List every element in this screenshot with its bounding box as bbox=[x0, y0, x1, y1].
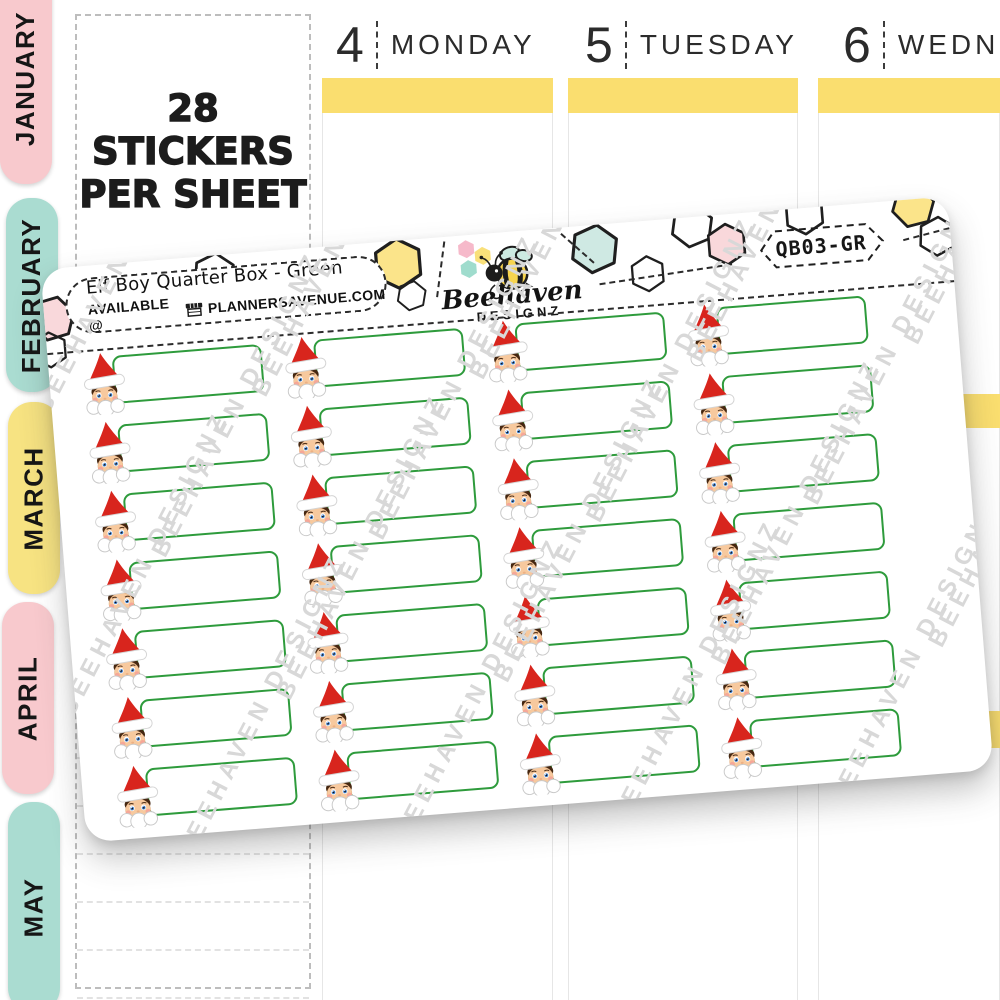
hexagon-pink-icon bbox=[703, 221, 750, 268]
elf-boy-icon bbox=[290, 470, 343, 538]
quarter-box bbox=[139, 688, 292, 748]
day-separator bbox=[883, 21, 885, 69]
quarter-box bbox=[542, 655, 695, 715]
elf-boy-icon bbox=[88, 486, 141, 554]
elf-boy-icon bbox=[99, 624, 152, 692]
day-header: 5 TUESDAY bbox=[568, 16, 798, 74]
quarter-box-sticker bbox=[88, 474, 292, 552]
day-number: 5 bbox=[585, 16, 614, 74]
elf-boy-icon bbox=[714, 713, 767, 781]
elf-boy-icon bbox=[513, 729, 566, 797]
day-highlight-bar bbox=[568, 78, 798, 113]
elf-boy-icon bbox=[306, 677, 359, 745]
quarter-box-sticker bbox=[687, 357, 891, 435]
logo-hex-pink bbox=[458, 240, 475, 259]
quarter-box bbox=[112, 344, 265, 404]
quarter-box bbox=[313, 328, 466, 388]
elf-boy-icon bbox=[508, 660, 561, 728]
quarter-box bbox=[117, 413, 270, 473]
sticker-sheet: Elf Boy Quarter Box - Green AVAILABLE @ … bbox=[40, 196, 993, 842]
sticker-count-line2: PER SHEET bbox=[75, 174, 311, 217]
quarter-box-sticker bbox=[513, 717, 717, 795]
day-separator bbox=[625, 21, 627, 69]
ruled-line bbox=[77, 853, 309, 855]
quarter-box-sticker bbox=[502, 579, 706, 657]
ruled-line bbox=[77, 949, 309, 951]
hexagon-outline-icon bbox=[393, 277, 430, 314]
quarter-box-sticker bbox=[83, 405, 287, 483]
month-tab-april: APRIL bbox=[2, 602, 54, 794]
quarter-box bbox=[145, 757, 298, 817]
quarter-box bbox=[536, 587, 689, 647]
elf-boy-icon bbox=[502, 592, 555, 660]
quarter-box bbox=[330, 534, 483, 594]
quarter-box bbox=[346, 740, 499, 800]
logo-hex-teal bbox=[460, 259, 477, 278]
quarter-box bbox=[128, 550, 281, 610]
elf-boy-icon bbox=[703, 575, 756, 643]
month-tab-label: MARCH bbox=[19, 446, 50, 550]
elf-boy-icon bbox=[491, 454, 544, 522]
quarter-box-sticker bbox=[485, 373, 689, 451]
day-highlight-bar bbox=[322, 78, 553, 113]
quarter-box-sticker bbox=[491, 442, 695, 520]
quarter-box-sticker bbox=[301, 596, 505, 674]
quarter-box bbox=[743, 639, 896, 699]
quarter-box bbox=[525, 449, 678, 509]
ruled-line bbox=[77, 901, 309, 903]
quarter-box-sticker bbox=[284, 389, 488, 467]
month-tab-may: MAY bbox=[8, 802, 60, 1000]
quarter-box bbox=[547, 724, 700, 784]
elf-boy-icon bbox=[681, 300, 734, 368]
elf-boy-icon bbox=[485, 385, 538, 453]
elf-boy-icon bbox=[94, 555, 147, 623]
day-separator bbox=[376, 21, 378, 69]
elf-boy-icon bbox=[105, 693, 158, 761]
quarter-box bbox=[531, 518, 684, 578]
quarter-box-sticker bbox=[295, 527, 499, 605]
quarter-box bbox=[716, 295, 869, 355]
day-number: 4 bbox=[336, 16, 365, 74]
quarter-box bbox=[727, 433, 880, 493]
quarter-box-sticker bbox=[703, 563, 907, 641]
month-tab-january: JANUARY bbox=[0, 0, 52, 184]
quarter-box bbox=[721, 364, 874, 424]
elf-boy-icon bbox=[284, 401, 337, 469]
quarter-box-sticker bbox=[692, 426, 896, 504]
shop-icon bbox=[184, 301, 203, 317]
sticker-count-line1: 28 STICKERS bbox=[75, 88, 311, 174]
day-highlight-bar bbox=[818, 78, 1000, 113]
day-name: WEDNESDAY bbox=[898, 29, 1000, 61]
quarter-box-sticker bbox=[105, 681, 309, 759]
quarter-box bbox=[520, 380, 673, 440]
quarter-box-sticker bbox=[698, 494, 902, 572]
quarter-box-sticker bbox=[99, 612, 303, 690]
product-image: 28 STICKERS PER SHEET 4 MONDAY 5 TUESDAY bbox=[0, 0, 1000, 1000]
elf-boy-icon bbox=[497, 523, 550, 591]
elf-boy-icon bbox=[301, 608, 354, 676]
quarter-box bbox=[341, 672, 494, 732]
elf-boy-icon bbox=[77, 349, 130, 417]
day-name: MONDAY bbox=[391, 29, 536, 61]
day-name: TUESDAY bbox=[640, 29, 798, 61]
quarter-box bbox=[732, 502, 885, 562]
quarter-box bbox=[335, 603, 488, 663]
month-tab-march: MARCH bbox=[8, 402, 60, 594]
month-tab-label: MAY bbox=[19, 877, 50, 937]
quarter-box-sticker bbox=[306, 664, 510, 742]
elf-boy-icon bbox=[698, 507, 751, 575]
ruled-line bbox=[77, 997, 309, 999]
elf-boy-icon bbox=[312, 745, 365, 813]
day-number: 6 bbox=[843, 16, 872, 74]
elf-boy-icon bbox=[480, 316, 533, 384]
quarter-box bbox=[324, 465, 477, 525]
elf-boy-icon bbox=[687, 369, 740, 437]
quarter-box bbox=[738, 570, 891, 630]
quarter-box-sticker bbox=[290, 458, 494, 536]
quarter-box-sticker bbox=[94, 543, 298, 621]
availability-site: PLANNERSAVENUE.COM bbox=[207, 286, 386, 316]
availability-prefix: AVAILABLE @ bbox=[87, 294, 181, 333]
sku-badge: QB03-GR bbox=[743, 217, 896, 275]
day-header: 6 WEDNESDAY bbox=[818, 16, 1000, 74]
quarter-box bbox=[318, 397, 471, 457]
sheet-title-pill: Elf Boy Quarter Box - Green AVAILABLE @ … bbox=[63, 254, 388, 336]
quarter-box-sticker bbox=[508, 648, 712, 726]
quarter-box bbox=[134, 619, 287, 679]
quarter-box-sticker bbox=[110, 749, 314, 827]
elf-boy-icon bbox=[295, 539, 348, 607]
sku-text: QB03-GR bbox=[775, 230, 868, 261]
month-tab-label: JANUARY bbox=[11, 10, 42, 145]
sticker-count-text: 28 STICKERS PER SHEET bbox=[75, 88, 311, 217]
elf-boy-icon bbox=[279, 333, 332, 401]
quarter-box bbox=[514, 312, 667, 372]
quarter-box-sticker bbox=[714, 701, 918, 779]
quarter-box-sticker bbox=[709, 632, 913, 710]
elf-boy-icon bbox=[110, 762, 163, 830]
elf-boy-icon bbox=[709, 644, 762, 712]
elf-boy-icon bbox=[83, 418, 136, 486]
quarter-box bbox=[123, 482, 276, 542]
month-tab-label: APRIL bbox=[13, 655, 44, 741]
quarter-box-sticker bbox=[312, 733, 516, 811]
quarter-box-sticker bbox=[497, 511, 701, 589]
quarter-box bbox=[749, 708, 902, 768]
elf-boy-icon bbox=[692, 438, 745, 506]
day-header: 4 MONDAY bbox=[322, 16, 553, 74]
